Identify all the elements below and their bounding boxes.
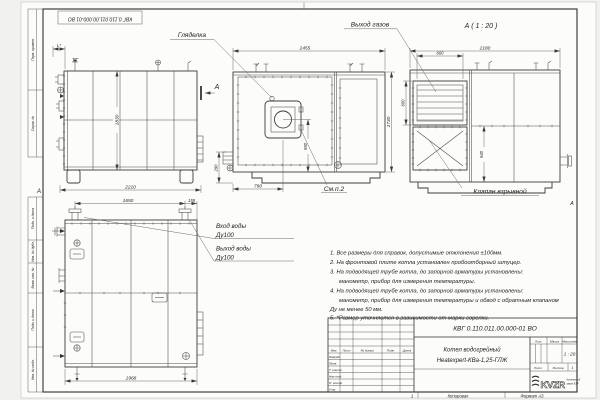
strip-label-sprav-no: Справ. №: [31, 115, 35, 131]
tb-product-name-2: Heatexpert-КВа-1,25-ГЛЖ: [437, 358, 508, 364]
tb-row-label-tkontr: Т. контр.: [329, 368, 342, 372]
strip-label-podp-data-1: Подп. и дата: [31, 208, 35, 229]
dim-plan-depth: 1730: [386, 116, 392, 127]
notes-line-3: 3. На подводящей трубе котла, до запорно…: [330, 269, 524, 276]
logo-caption-1: Котельный: [567, 379, 581, 382]
tb-row-label-razrab: Разраб.: [329, 355, 340, 359]
section-arrow-letter: А: [214, 84, 220, 91]
dim-section-width: 2180: [479, 45, 491, 51]
tb-row-label-prov: Пров.: [329, 362, 337, 366]
tb-sheet-label: Лист: [533, 366, 542, 370]
notes-line-8: 5. *Размер уточняется в зависимости от м…: [330, 316, 489, 322]
paper: [21, 2, 596, 398]
tb-mass-label: Масса: [550, 339, 559, 343]
tb-row-label-utv: Утв.: [329, 388, 336, 392]
dim-side-width: 2210: [124, 184, 136, 190]
label-water-outlet: Выход воды: [216, 246, 251, 253]
dim-side-height: 1830: [114, 114, 120, 125]
dim-plan-width: 2455: [299, 45, 311, 51]
strip-label-inv-dubl: Инв. № дубл.: [31, 241, 35, 262]
dim-rear-width: 1968: [126, 375, 137, 381]
tb-sheets-value: 1: [572, 366, 574, 370]
strip-label-inv-podl: Инв. № подл.: [31, 359, 35, 380]
tb-row-label-nachotd: Нач.отд.: [329, 375, 342, 379]
label-water-outlet-dn: Ду100: [215, 255, 234, 262]
tb-doc-number: КВГ 0.110.011.00.000-01 ВО: [453, 326, 537, 333]
notes-line-2: 2. На фронтовой плите котла установлен п…: [329, 259, 521, 266]
label-see-note-2: См.п.2: [324, 186, 345, 193]
footer-copied: Копировал: [448, 394, 469, 399]
dim-plan-front: 790: [254, 183, 262, 189]
label-gas-outlet: Выход газов: [351, 21, 390, 29]
logo-text: KVZR: [541, 380, 566, 391]
label-sight-glass: Гляделка: [178, 31, 206, 39]
footer-format: Формат А3: [521, 394, 545, 399]
tb-col-header-date: Дата: [402, 349, 411, 353]
tb-col-header-izm: Изм.: [331, 349, 338, 353]
tb-scale-value: 1 : 20: [564, 352, 576, 357]
notes-line-7: Ду не менее 50 мм.: [329, 307, 383, 313]
tb-col-header-doc: № докум.: [361, 349, 375, 353]
dim-plan-side: 290: [214, 164, 219, 173]
tb-product-name-1: Котел водогрейный: [443, 347, 501, 354]
notes-line-6: манометр, прибор для измерения температу…: [339, 298, 559, 304]
tb-col-header-list: Лист: [342, 349, 351, 353]
label-water-inlet-dn: Ду100: [215, 232, 234, 239]
tb-row-label-nkontr: Н. контр.: [329, 381, 343, 385]
zone-letter-right: А: [569, 201, 574, 207]
section-view-title: А ( 1 : 20 ): [464, 23, 498, 30]
dim-side-left: L*: [57, 43, 61, 48]
zone-letter-left: А: [36, 189, 41, 195]
strip-label-podp-data-2: Подп. и дата: [31, 309, 35, 330]
drawing-sheet: Перв. примен. Справ. № Подп. и дата Инв.…: [0, 0, 600, 400]
strip-label-perv-primen: Перв. примен.: [31, 38, 35, 61]
footer-zone-number: 1: [411, 394, 413, 399]
dim-rear-pipes: 1650: [123, 198, 134, 204]
label-explosion-valve: Клапан взрывной: [473, 188, 527, 196]
tb-sheets-label: Листов: [551, 366, 564, 370]
dim-valve-offset: 940: [479, 150, 484, 158]
logo-caption-2: завод КЗР: [566, 383, 579, 386]
dim-louver-width: 660: [437, 51, 445, 56]
strip-label-vzam-inv: Взам. инв. №: [31, 267, 35, 288]
notes-line-4: манометр, прибор для измерения температу…: [339, 279, 475, 285]
notes-line-5: 4. На подводящей трубе котла, до запорно…: [330, 288, 524, 295]
dim-rear-edge: 159: [188, 198, 196, 203]
tb-col-header-sign: Подп.: [387, 349, 395, 353]
tb-lit-label: Лит.: [534, 339, 542, 343]
label-water-inlet: Вход воды: [216, 223, 246, 230]
tb-scale-label: Масштаб: [562, 339, 577, 343]
dim-louver-height: 600: [401, 99, 406, 107]
doc-number-stamp-text: КВГ 0.110.011.00.000-01 ВО: [68, 16, 132, 22]
notes-line-1: 1. Все размеры для справок, допустимые о…: [330, 251, 503, 257]
